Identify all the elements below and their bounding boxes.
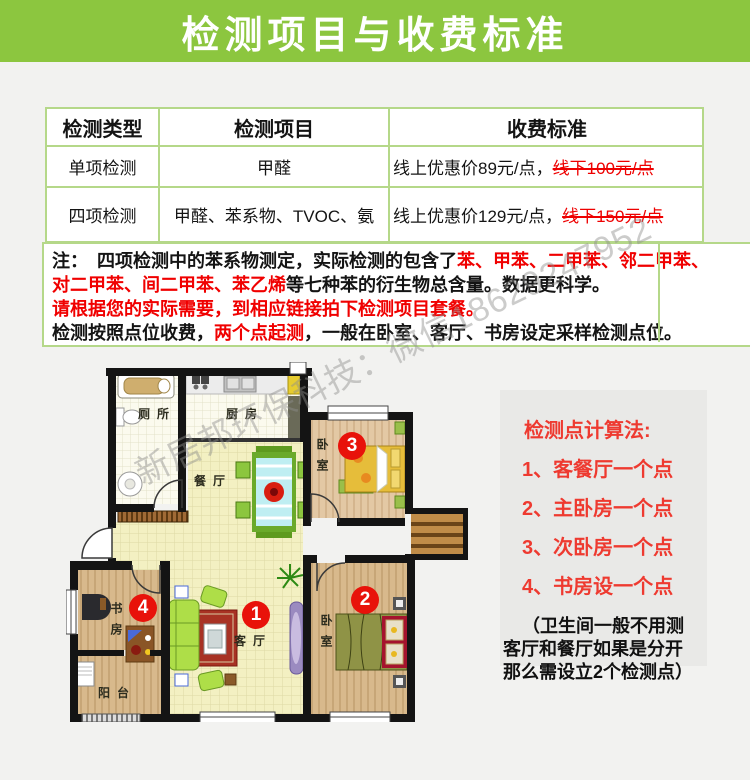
poster: 检测项目与收费标准 检测类型 检测项目 收费标准 单项检测 甲醛 线上优惠价89…: [0, 0, 750, 780]
bathtub-pillow: [158, 379, 170, 393]
calc-panel-title: 检测点计算法:: [524, 414, 707, 443]
cell-type: 四项检测: [47, 188, 158, 241]
stove: [192, 376, 200, 384]
label-kitchen: 厨房: [226, 405, 264, 422]
stove-burner: [194, 385, 199, 390]
table-flower-center: [270, 488, 278, 496]
price-offline-struck: 线下100元/点: [553, 154, 654, 179]
note-text: 注： 四项检测中的苯系物测定，实际检测的包含了: [52, 251, 457, 271]
nightstand-top: [396, 678, 403, 685]
stove-burner: [203, 385, 208, 390]
sink-basin: [242, 378, 254, 389]
calc-item-1: 1、客餐厅一个点: [522, 453, 707, 482]
note-line-3: 请根据您的实际需要，到相应链接拍下检测项目套餐。: [52, 297, 750, 321]
col-header-items: 检测项目: [158, 109, 388, 145]
side-table: [175, 586, 188, 598]
calc-item-4: 4、书房设一个点: [522, 570, 707, 599]
calc-note-line: 客厅和餐厅如果是分开: [500, 638, 707, 661]
note-divider-line: [658, 242, 660, 342]
plant-pot: [395, 496, 405, 508]
calc-item-3: 3、次卧房一个点: [522, 531, 707, 560]
sofa: [169, 600, 199, 670]
note-text-red: 对二甲苯、间二甲苯、苯乙烯: [52, 275, 286, 295]
plant-pot: [395, 422, 405, 434]
desk-cup: [145, 635, 151, 641]
point-marker-1: 1: [242, 601, 270, 629]
tv-screen: [291, 612, 301, 664]
pillow-dot: [391, 651, 397, 657]
note-line-1: 注： 四项检测中的苯系物测定，实际检测的包含了苯、甲苯、二甲苯、邻二甲苯、: [52, 249, 750, 273]
pricing-table: 检测类型 检测项目 收费标准 单项检测 甲醛 线上优惠价89元/点， 线下100…: [45, 107, 704, 243]
ottoman: [225, 674, 236, 685]
label-toilet: 厕所: [138, 405, 176, 422]
cell-type: 单项检测: [47, 147, 158, 186]
calc-item-2: 2、主卧房一个点: [522, 492, 707, 521]
table-row-four: 四项检测 甲醛、苯系物、TVOC、氨 线上优惠价129元/点， 线下150元/点: [47, 186, 702, 241]
wardrobe-shelf: [411, 533, 463, 537]
note-line-2: 对二甲苯、间二甲苯、苯乙烯等七种苯的衍生物总含量。数据更科学。: [52, 273, 750, 297]
dining-chair: [236, 462, 250, 478]
price-online: 线上优惠价89元/点，: [393, 154, 553, 179]
wardrobe-shelf: [411, 522, 463, 526]
table-header-row: 检测类型 检测项目 收费标准: [47, 109, 702, 145]
note-text-red: 请根据您的实际需要，到相应链接拍下检测项目套餐。: [52, 299, 484, 319]
kitchen-vent-window: [290, 362, 306, 374]
calc-panel: 检测点计算法: 1、客餐厅一个点 2、主卧房一个点 3、次卧房一个点 4、书房设…: [500, 390, 707, 666]
balcony-railing: [82, 714, 140, 722]
dining-chair: [236, 502, 250, 518]
piano-bench: [100, 598, 106, 610]
coffee-table-top: [208, 630, 222, 648]
price-offline-struck: 线下150元/点: [562, 202, 663, 227]
label-bedroom-right: 卧室: [318, 614, 335, 656]
cell-price: 线上优惠价129元/点， 线下150元/点: [388, 188, 701, 241]
kitchen-cabinet: [288, 374, 300, 394]
price-online: 线上优惠价129元/点，: [393, 202, 562, 227]
apple: [131, 645, 141, 655]
point-marker-4: 4: [129, 594, 157, 622]
bed3-duvet: [377, 446, 387, 492]
sink-basin: [227, 378, 239, 389]
label-balcony: 阳台: [98, 684, 136, 701]
bed3-pattern: [361, 473, 371, 483]
bed3-pillow: [391, 449, 400, 467]
stove: [201, 376, 209, 384]
pillow-dot: [391, 627, 397, 633]
cell-items: 甲醛: [158, 147, 388, 186]
table-row-single: 单项检测 甲醛 线上优惠价89元/点， 线下100元/点: [47, 145, 702, 186]
side-table: [175, 674, 188, 686]
floorplan: 厕所 厨房 餐厅 卧室 客厅 卧室 书房 阳台 1 2 3 4: [66, 362, 468, 722]
label-bedroom-top: 卧室: [314, 438, 331, 480]
calc-note-line: 那么需设立2个检测点）: [500, 661, 707, 684]
note-text-red: 两个点起测: [214, 323, 304, 343]
cell-price: 线上优惠价89元/点， 线下100元/点: [388, 147, 701, 186]
label-dining: 餐厅: [194, 472, 232, 489]
washbasin-drain: [125, 479, 135, 489]
note-text: 等七种苯的衍生物总含量。数据更科学。: [286, 275, 610, 295]
page-title: 检测项目与收费标准: [181, 4, 568, 59]
point-marker-3: 3: [338, 432, 366, 460]
note-text: 检测按照点位收费，: [52, 323, 214, 343]
header-banner: 检测项目与收费标准: [0, 0, 750, 62]
floorplan-drawing: [66, 362, 468, 722]
note-line-4: 检测按照点位收费，两个点起测，一般在卧室、客厅、书房设定采样检测点位。: [52, 321, 750, 345]
wardrobe-shelf: [411, 544, 463, 548]
col-header-price: 收费标准: [388, 109, 701, 145]
nightstand-top: [396, 600, 403, 607]
cell-items: 甲醛、苯系物、TVOC、氨: [158, 188, 388, 241]
note-text-red: 苯、甲苯、二甲苯、邻二甲苯、: [457, 251, 709, 271]
note-box: 注： 四项检测中的苯系物测定，实际检测的包含了苯、甲苯、二甲苯、邻二甲苯、 对二…: [42, 242, 750, 347]
note-text: ，一般在卧室、客厅、书房设定采样检测点位。: [304, 323, 682, 343]
col-header-type: 检测类型: [47, 109, 158, 145]
label-study: 书房: [108, 602, 125, 644]
piano: [82, 594, 111, 620]
label-living: 客厅: [234, 632, 272, 649]
calc-panel-note: （卫生间一般不用测 客厅和餐厅如果是分开 那么需设立2个检测点）: [500, 615, 707, 684]
fridge: [288, 396, 300, 438]
point-marker-2: 2: [351, 586, 379, 614]
entry-door: [82, 528, 112, 558]
entry-mat: [118, 511, 188, 522]
calc-note-line: （卫生间一般不用测: [500, 615, 707, 638]
bed3-pillow: [391, 470, 400, 488]
